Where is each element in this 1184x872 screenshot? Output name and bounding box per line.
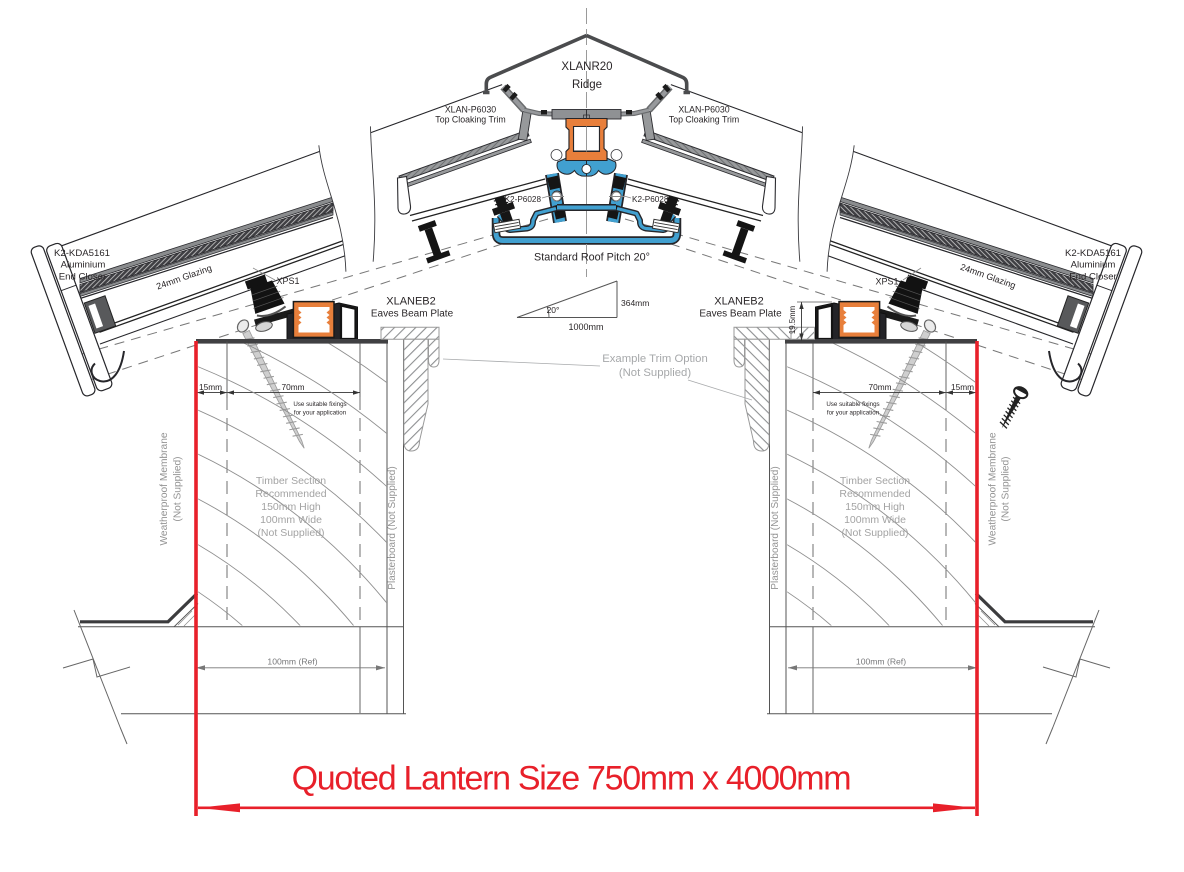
svg-text:End Closer: End Closer — [59, 271, 107, 282]
svg-text:(Not Supplied): (Not Supplied) — [173, 456, 184, 521]
svg-text:20°: 20° — [547, 305, 560, 315]
svg-text:XLANEB2: XLANEB2 — [386, 296, 436, 308]
svg-text:100mm Wide: 100mm Wide — [260, 514, 322, 526]
svg-text:1000mm: 1000mm — [568, 322, 603, 332]
svg-text:XLAN-P6030: XLAN-P6030 — [445, 105, 496, 115]
svg-text:Weatherproof Membrane: Weatherproof Membrane — [988, 432, 999, 545]
svg-text:100mm (Ref): 100mm (Ref) — [856, 657, 906, 667]
svg-text:XLANEB2: XLANEB2 — [714, 296, 764, 308]
svg-text:Recommended: Recommended — [255, 488, 326, 500]
svg-text:(Not Supplied): (Not Supplied) — [1001, 456, 1012, 521]
svg-text:K2-P6028: K2-P6028 — [632, 195, 669, 204]
svg-text:K2-KDA5161: K2-KDA5161 — [1065, 248, 1121, 259]
svg-text:Top Cloaking Trim: Top Cloaking Trim — [435, 115, 505, 125]
svg-text:(Not Supplied): (Not Supplied) — [619, 367, 691, 379]
svg-text:XLANR20: XLANR20 — [561, 61, 612, 73]
svg-text:for your application: for your application — [294, 410, 347, 417]
svg-text:Quoted Lantern Size 750mm x 40: Quoted Lantern Size 750mm x 4000mm — [292, 760, 851, 798]
svg-text:(Not Supplied): (Not Supplied) — [257, 527, 324, 539]
svg-text:364mm: 364mm — [621, 298, 649, 308]
svg-text:Eaves Beam Plate: Eaves Beam Plate — [371, 309, 454, 320]
svg-text:100mm Wide: 100mm Wide — [844, 514, 906, 526]
svg-text:Example Trim Option: Example Trim Option — [602, 353, 707, 365]
svg-text:Use suitable fixings: Use suitable fixings — [826, 401, 879, 408]
svg-text:(Not Supplied): (Not Supplied) — [841, 527, 908, 539]
svg-text:K2-P6028: K2-P6028 — [505, 195, 542, 204]
svg-text:70mm: 70mm — [868, 382, 891, 392]
svg-text:Timber Section: Timber Section — [256, 475, 326, 487]
svg-text:70mm: 70mm — [281, 382, 304, 392]
svg-text:150mm High: 150mm High — [261, 501, 321, 513]
svg-text:XPS1: XPS1 — [277, 276, 300, 286]
svg-text:Recommended: Recommended — [839, 488, 910, 500]
svg-text:15mm: 15mm — [951, 382, 974, 392]
svg-text:Standard Roof Pitch 20°: Standard Roof Pitch 20° — [534, 252, 650, 264]
svg-text:Eaves Beam Plate: Eaves Beam Plate — [699, 309, 782, 320]
svg-text:150mm High: 150mm High — [845, 501, 905, 513]
svg-text:Plasterboard (Not Supplied): Plasterboard (Not Supplied) — [387, 466, 398, 589]
svg-text:XLAN-P6030: XLAN-P6030 — [678, 105, 729, 115]
svg-text:XPS1: XPS1 — [876, 277, 899, 287]
svg-text:100mm (Ref): 100mm (Ref) — [267, 657, 317, 667]
svg-text:End Closer: End Closer — [1069, 271, 1117, 282]
svg-text:Timber Section: Timber Section — [840, 475, 910, 487]
svg-text:Ridge: Ridge — [572, 79, 602, 91]
svg-text:15mm: 15mm — [199, 382, 222, 392]
svg-text:Top Cloaking Trim: Top Cloaking Trim — [669, 115, 739, 125]
svg-text:for your application: for your application — [827, 410, 880, 417]
svg-text:19.5mm: 19.5mm — [788, 306, 797, 334]
svg-text:K2-KDA5161: K2-KDA5161 — [54, 248, 110, 259]
svg-text:Weatherproof Membrane: Weatherproof Membrane — [159, 432, 170, 545]
svg-text:Aluminium: Aluminium — [1071, 260, 1116, 271]
svg-text:Use suitable fixings: Use suitable fixings — [293, 401, 346, 408]
svg-text:Plasterboard (Not Supplied): Plasterboard (Not Supplied) — [770, 466, 781, 589]
svg-text:Aluminium: Aluminium — [61, 260, 106, 271]
